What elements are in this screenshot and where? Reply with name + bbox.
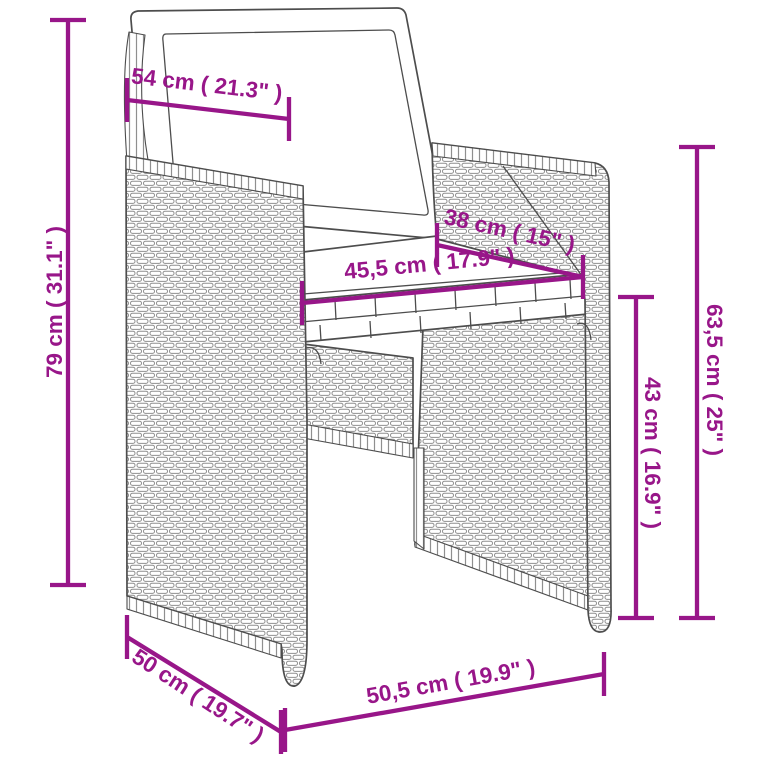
dimension-base-width: 50,5 cm ( 19.9" )	[285, 652, 604, 752]
dimension-label: 50 cm ( 19.7" )	[128, 644, 269, 748]
left-side-panel	[126, 156, 307, 686]
dimension-seat-height: 43 cm ( 16.9" )	[618, 297, 665, 618]
dimension-label: 43 cm ( 16.9" )	[640, 377, 665, 529]
dimension-label: 79 cm ( 31.1" )	[42, 226, 67, 378]
dimension-diagram: 54 cm ( 21.3" ) 79 cm ( 31.1" ) 38 cm ( …	[0, 0, 767, 767]
dimension-armrest-height: 63,5 cm ( 25" )	[679, 147, 727, 618]
left-panel-inner	[303, 344, 413, 458]
dimension-total-height: 79 cm ( 31.1" )	[42, 20, 86, 585]
chair-dimension-illustration: 54 cm ( 21.3" ) 79 cm ( 31.1" ) 38 cm ( …	[0, 0, 767, 767]
dimension-label: 63,5 cm ( 25" )	[702, 304, 727, 456]
back-panel-inner	[414, 310, 588, 610]
dimension-line	[285, 652, 604, 752]
